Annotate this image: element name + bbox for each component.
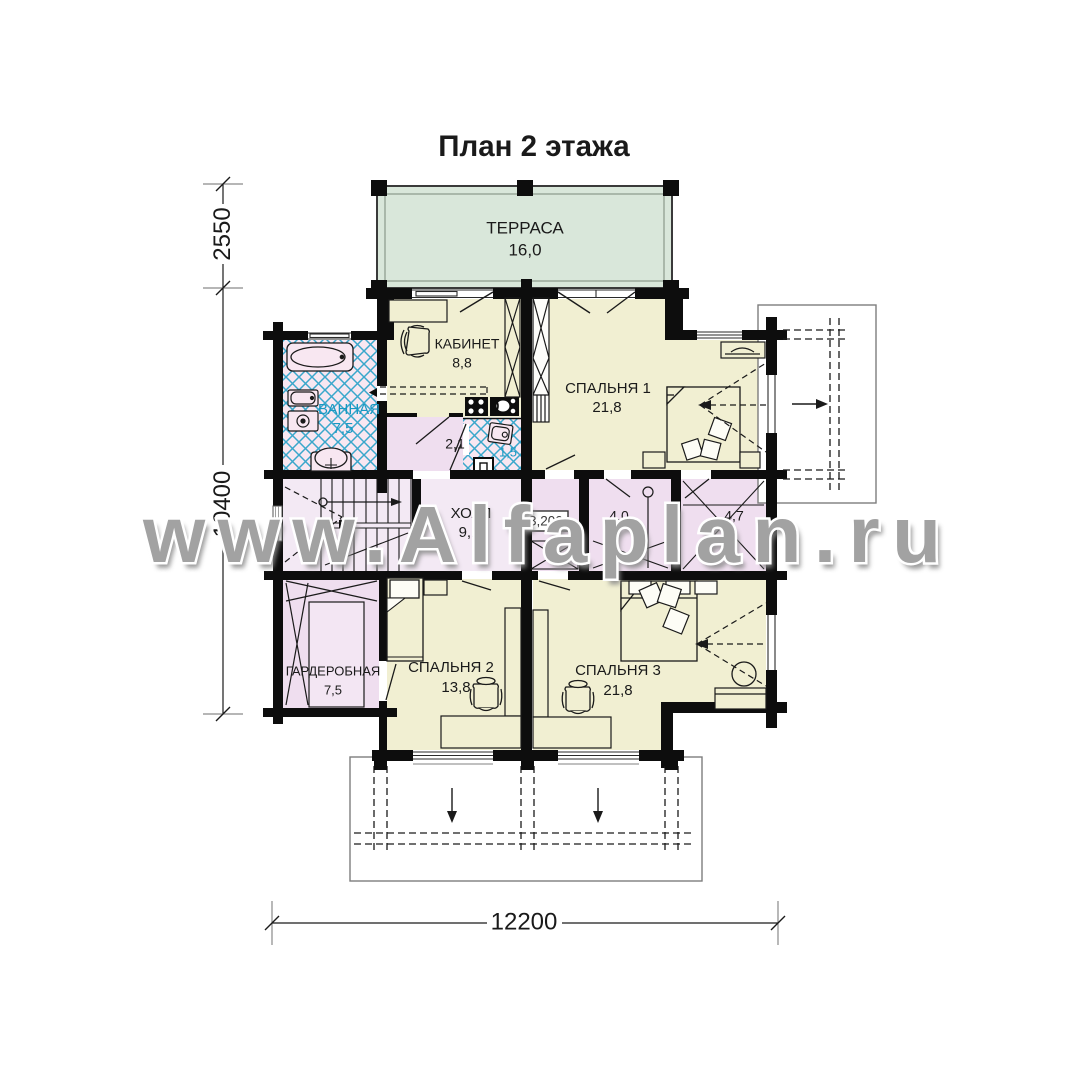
svg-text:СПАЛЬНЯ 2: СПАЛЬНЯ 2 xyxy=(408,659,494,676)
svg-text:12200: 12200 xyxy=(491,908,558,935)
svg-text:КАБИНЕТ: КАБИНЕТ xyxy=(435,336,500,352)
svg-text:21,8: 21,8 xyxy=(603,682,632,699)
svg-text:8,8: 8,8 xyxy=(452,355,472,371)
svg-text:План 2 этажа: План 2 этажа xyxy=(438,130,630,163)
svg-text:1,5: 1,5 xyxy=(499,444,517,459)
svg-text:7,5: 7,5 xyxy=(324,682,342,697)
svg-text:ВАННАЯ: ВАННАЯ xyxy=(318,401,380,418)
svg-text:ГАРДЕРОБНАЯ: ГАРДЕРОБНАЯ xyxy=(286,663,381,678)
svg-text:СПАЛЬНЯ 3: СПАЛЬНЯ 3 xyxy=(575,662,661,679)
svg-text:ТЕРРАСА: ТЕРРАСА xyxy=(486,218,564,237)
svg-text:2,1: 2,1 xyxy=(445,436,465,452)
svg-text:13,8: 13,8 xyxy=(441,679,470,696)
svg-text:2550: 2550 xyxy=(209,207,236,260)
svg-text:СПАЛЬНЯ 1: СПАЛЬНЯ 1 xyxy=(565,380,651,397)
svg-text:21,8: 21,8 xyxy=(592,399,621,416)
svg-text:16,0: 16,0 xyxy=(508,240,541,259)
svg-text:7,5: 7,5 xyxy=(333,420,354,437)
